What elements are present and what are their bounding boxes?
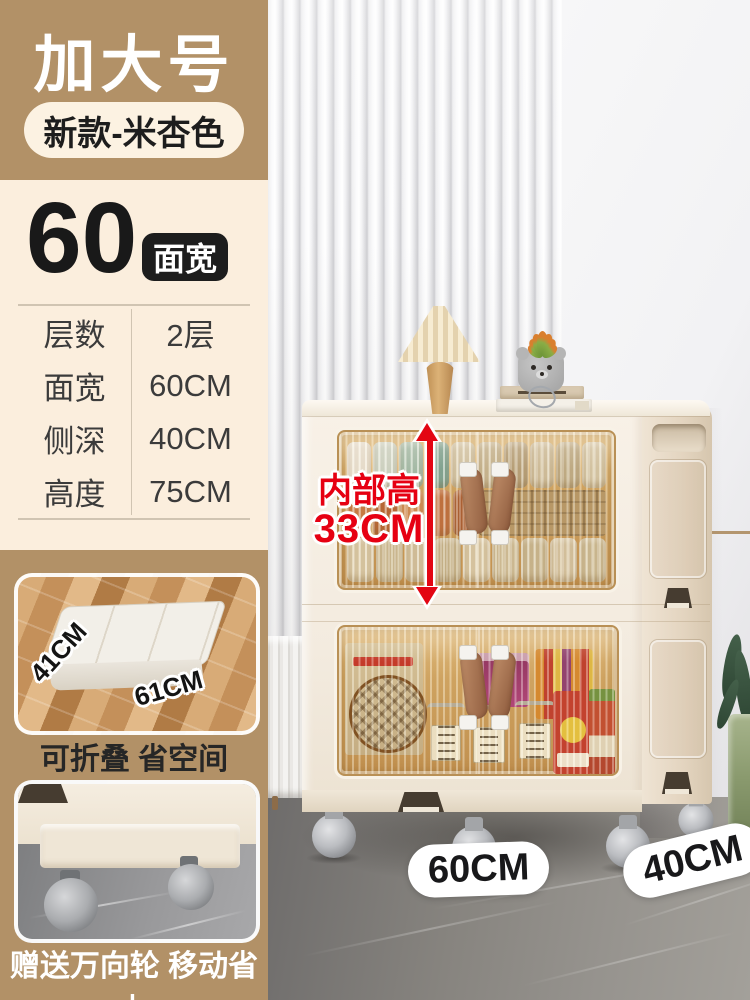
spec-table: 层数 2层 面宽 60CM 侧深 40CM 高度 75CM xyxy=(18,304,250,520)
handle-clip xyxy=(459,530,477,545)
spec-label: 层数 xyxy=(18,310,131,355)
spec-table-divider xyxy=(131,309,132,515)
cabinet-bottom-drawer xyxy=(40,824,240,868)
width-unit-badge: 面宽 xyxy=(142,233,228,281)
caster-wheel xyxy=(168,864,214,910)
kick-notch xyxy=(398,792,444,812)
inner-height-label: 内部高 33CM xyxy=(306,474,432,551)
caster-wheel xyxy=(312,814,356,858)
side-recess-panel xyxy=(650,640,706,758)
arrow-head-down xyxy=(416,587,438,605)
side-handle-slot xyxy=(652,424,706,452)
inner-height-value: 33CM xyxy=(306,509,432,551)
side-notch xyxy=(662,772,692,794)
size-tag-title: 加大号 xyxy=(0,14,268,104)
width-number: 60 xyxy=(26,188,137,288)
wheels-photo xyxy=(14,780,260,943)
plant-pot xyxy=(728,714,750,830)
handle-clip xyxy=(459,715,477,730)
size-tag-box: 加大号 新款-米杏色 xyxy=(0,0,268,180)
handle-clip xyxy=(491,530,509,545)
cabinet-tier-seam xyxy=(302,604,710,622)
handle-clip xyxy=(491,645,509,660)
spec-value: 75CM xyxy=(131,474,250,510)
wheels-caption: 赠送万向轮 移动省力 xyxy=(0,941,268,1000)
spec-label: 面宽 xyxy=(18,363,131,408)
cabinet-kick xyxy=(302,790,642,812)
spec-value: 40CM xyxy=(131,421,250,457)
spec-value: 2层 xyxy=(131,310,250,355)
spec-label: 高度 xyxy=(18,469,131,514)
spec-label: 侧深 xyxy=(18,416,131,461)
variant-pill: 新款-米杏色 xyxy=(24,102,244,158)
feature-panel: 41CM 61CM 可折叠 省空间 赠送万向轮 移动省力 xyxy=(0,550,268,1000)
spec-row: 层数 2层 xyxy=(18,306,250,359)
folded-cabinet-photo: 41CM 61CM xyxy=(14,573,260,735)
side-recess-panel xyxy=(650,460,706,578)
spec-row: 高度 75CM xyxy=(18,465,250,518)
product-image: 内部高 33CM 60CM 40CM 加大号 新款-米杏色 60 面宽 层数 2… xyxy=(0,0,750,1000)
spec-panel: 60 面宽 层数 2层 面宽 60CM 侧深 40CM 高度 75CM xyxy=(0,180,268,550)
handle-clip xyxy=(491,462,509,477)
radiator-leg xyxy=(272,796,278,810)
bottom-notch xyxy=(18,784,68,803)
inner-height-text: 内部高 xyxy=(306,474,432,509)
spec-row: 侧深 40CM xyxy=(18,412,250,465)
caster-wheel xyxy=(44,878,98,932)
handle-clip xyxy=(459,462,477,477)
handle-clip xyxy=(459,645,477,660)
arrow-head-up xyxy=(416,423,438,441)
spec-value: 60CM xyxy=(131,368,250,404)
spec-row: 面宽 60CM xyxy=(18,359,250,412)
succulent-plant xyxy=(514,324,570,356)
width-dimension-pill: 60CM xyxy=(407,841,550,899)
fold-caption: 可折叠 省空间 xyxy=(0,734,268,778)
handle-clip xyxy=(491,715,509,730)
side-notch xyxy=(664,588,692,608)
lower-door-window xyxy=(337,625,619,776)
